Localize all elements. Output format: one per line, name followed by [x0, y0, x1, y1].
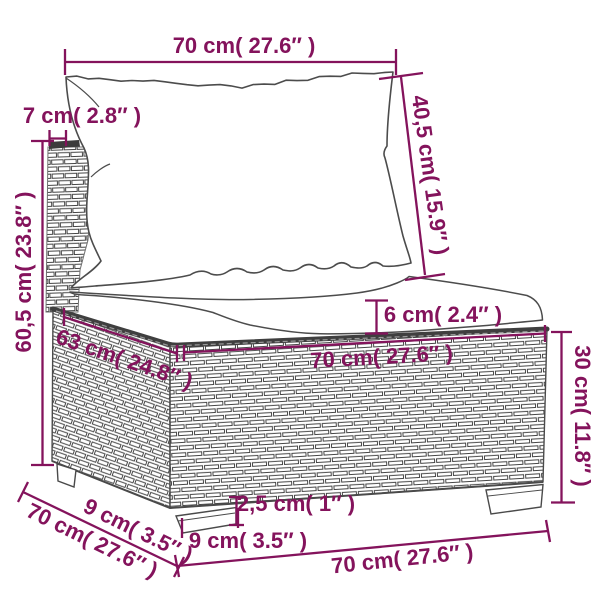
svg-text:6 cm( 2.4″ ): 6 cm( 2.4″ ) [384, 302, 502, 327]
svg-text:9 cm( 3.5″ ): 9 cm( 3.5″ ) [189, 528, 307, 553]
svg-text:70 cm( 27.6″ ): 70 cm( 27.6″ ) [173, 33, 316, 58]
svg-text:30 cm( 11.8″ ): 30 cm( 11.8″ ) [570, 345, 595, 486]
svg-text:2,5 cm( 1″ ): 2,5 cm( 1″ ) [237, 491, 355, 516]
svg-text:60,5 cm( 23.8″ ): 60,5 cm( 23.8″ ) [11, 192, 36, 353]
svg-text:7 cm( 2.8″ ): 7 cm( 2.8″ ) [23, 103, 141, 128]
